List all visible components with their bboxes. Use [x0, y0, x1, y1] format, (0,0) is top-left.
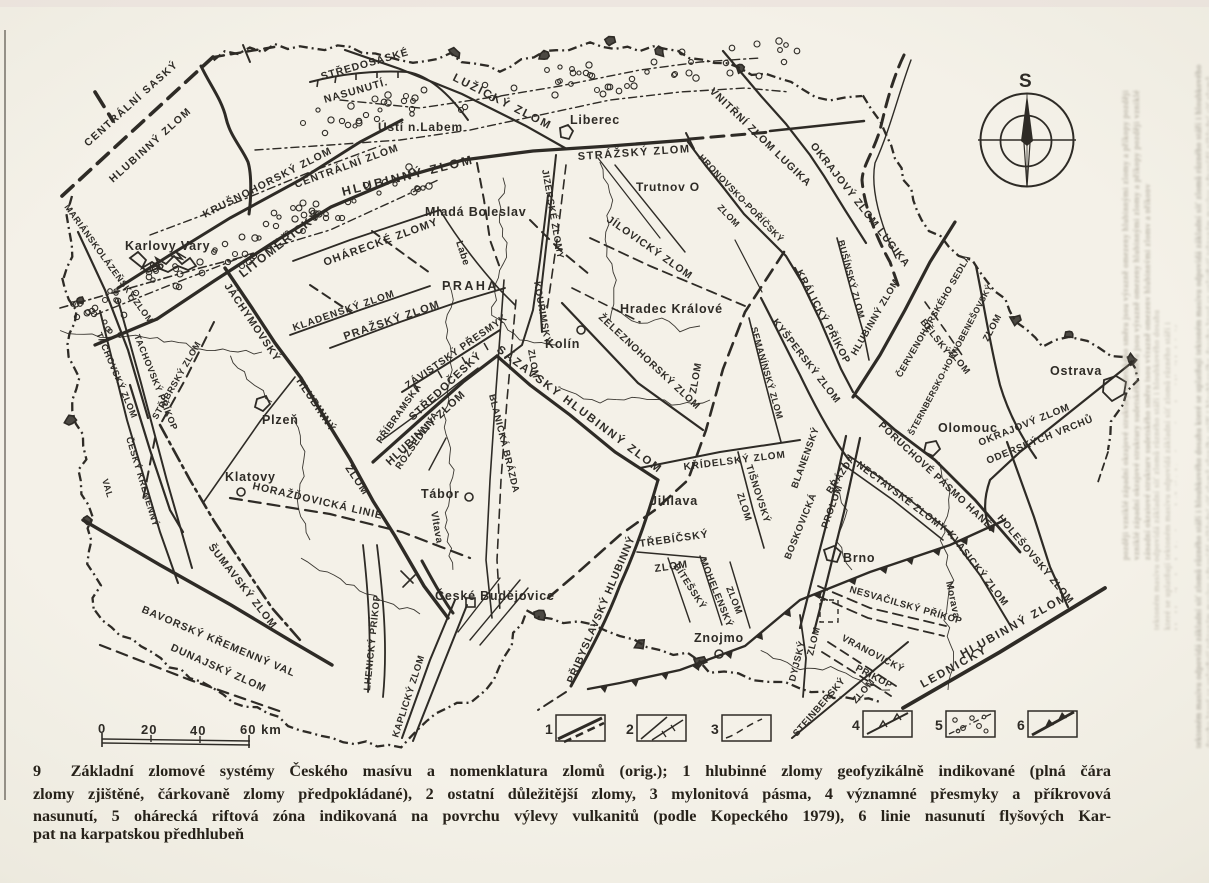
svg-text:2: 2	[626, 721, 634, 737]
svg-text:BUŠÍNSKÝ ZLOM: BUŠÍNSKÝ ZLOM	[836, 239, 868, 320]
svg-text:20: 20	[141, 722, 157, 737]
svg-text:Plzeň: Plzeň	[262, 413, 299, 427]
svg-text:5: 5	[935, 717, 943, 733]
svg-text:S: S	[1019, 71, 1032, 92]
svg-text:HLUBINNÝ ZLOM: HLUBINNÝ ZLOM	[958, 591, 1070, 661]
svg-text:BLANICKÁ BRÁZDA: BLANICKÁ BRÁZDA	[486, 393, 521, 494]
svg-text:České Budějovice: České Budějovice	[435, 588, 555, 603]
svg-text:PRAHA: PRAHA	[442, 279, 499, 293]
svg-text:BLANENSKÝ: BLANENSKÝ	[789, 425, 822, 490]
svg-text:KAPLICKÝ ZLOM: KAPLICKÝ ZLOM	[389, 654, 427, 739]
svg-text:Vltava: Vltava	[428, 511, 444, 545]
svg-text:STŘEDOSASKÉ: STŘEDOSASKÉ	[319, 45, 410, 83]
svg-text:TŘEBÍČSKÝ: TŘEBÍČSKÝ	[639, 527, 710, 550]
svg-text:ŠTERNBERSKO-HORNOBENEŠOVSKÝ: ŠTERNBERSKO-HORNOBENEŠOVSKÝ	[905, 282, 994, 437]
svg-text:JIZERSKÉ ZLOMY: JIZERSKÉ ZLOMY	[539, 169, 566, 260]
svg-text:OHÁRECKÉ ZLOMY: OHÁRECKÉ ZLOMY	[322, 215, 440, 269]
svg-text:3: 3	[711, 721, 719, 737]
svg-text:LITOMĚŘICKÝ: LITOMĚŘICKÝ	[236, 208, 323, 281]
svg-text:4: 4	[852, 717, 860, 733]
svg-text:ZLOM: ZLOM	[343, 463, 372, 498]
svg-text:6: 6	[1017, 717, 1025, 733]
svg-text:ŠUMAVSKÝ ZLOM: ŠUMAVSKÝ ZLOM	[206, 541, 281, 631]
svg-text:ZLOM: ZLOM	[688, 362, 704, 395]
svg-text:TACHOVSKÝ ZLOM: TACHOVSKÝ ZLOM	[94, 330, 140, 419]
svg-text:LHENICKÝ PŘÍKOP: LHENICKÝ PŘÍKOP	[361, 594, 383, 691]
svg-text:SÁZAVSKÝ HLUBINNÝ ZLOM: SÁZAVSKÝ HLUBINNÝ ZLOM	[494, 343, 665, 476]
svg-text:PŘIBYSLAVSKÝ HLUBINNÝ: PŘIBYSLAVSKÝ HLUBINNÝ	[564, 534, 638, 686]
svg-text:PORUCHOVÉ PÁSMO HANÉ: PORUCHOVÉ PÁSMO HANÉ	[876, 419, 995, 532]
svg-text:BOSKOVICKÁ: BOSKOVICKÁ	[783, 492, 820, 561]
svg-text:Mladá Boleslav: Mladá Boleslav	[425, 205, 527, 219]
svg-text:ZLOM: ZLOM	[981, 312, 1004, 343]
svg-text:0: 0	[98, 721, 106, 736]
svg-text:SEMANÍNSKÝ ZLOM: SEMANÍNSKÝ ZLOM	[749, 326, 786, 421]
svg-text:ZLOM: ZLOM	[805, 626, 823, 657]
svg-text:STEINBERSKÝ: STEINBERSKÝ	[790, 675, 848, 739]
svg-text:Brno: Brno	[843, 551, 875, 565]
svg-text:Jihlava: Jihlava	[650, 494, 698, 508]
svg-text:Tábor: Tábor	[421, 487, 460, 501]
svg-text:Ostrava: Ostrava	[1050, 364, 1102, 378]
svg-text:VAL: VAL	[100, 478, 115, 499]
svg-text:Karlovy Vary: Karlovy Vary	[125, 239, 210, 253]
svg-text:Hradec Králové: Hradec Králové	[620, 302, 723, 316]
svg-text:ZLOM: ZLOM	[850, 677, 878, 706]
svg-text:Ústí n.Labem: Ústí n.Labem	[378, 119, 463, 134]
svg-text:HLUBINNÝ: HLUBINNÝ	[294, 375, 340, 434]
svg-text:Klatovy: Klatovy	[225, 470, 276, 484]
svg-text:HRONOVSKO-POŘÍČSKÝ: HRONOVSKO-POŘÍČSKÝ	[697, 152, 787, 245]
svg-text:OKRAJOVÝ ZLOM LUGIKA: OKRAJOVÝ ZLOM LUGIKA	[808, 140, 914, 270]
svg-text:60 km: 60 km	[240, 722, 282, 737]
svg-text:Trutnov O: Trutnov O	[636, 180, 700, 194]
svg-text:Znojmo: Znojmo	[694, 631, 744, 645]
svg-text:1: 1	[545, 721, 553, 737]
svg-text:ŽELEZNOHORSKÝ ZLOM: ŽELEZNOHORSKÝ ZLOM	[596, 311, 704, 413]
svg-text:ČESKÝ KŘEMENNÝ: ČESKÝ KŘEMENNÝ	[124, 435, 162, 528]
svg-text:ZLOM: ZLOM	[734, 492, 754, 523]
svg-text:40: 40	[190, 723, 206, 738]
svg-text:Liberec: Liberec	[570, 113, 620, 127]
